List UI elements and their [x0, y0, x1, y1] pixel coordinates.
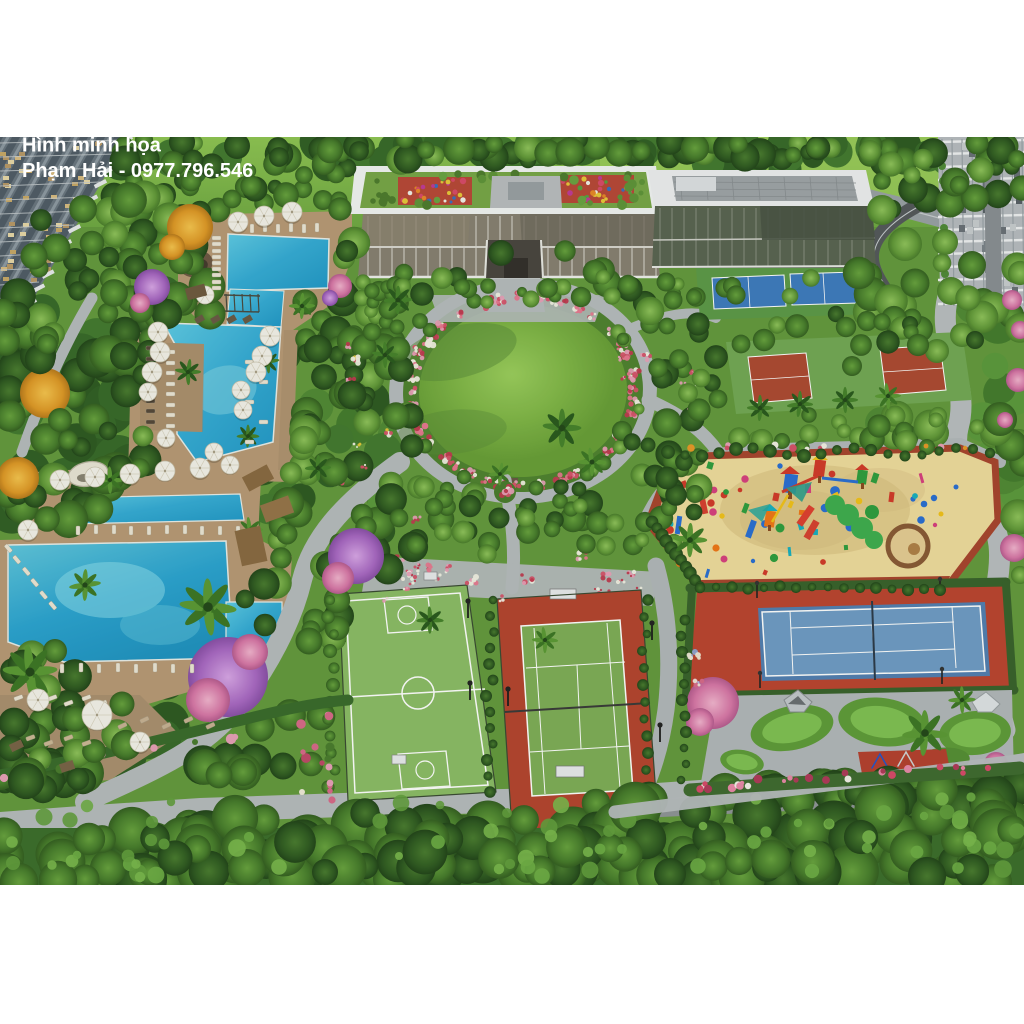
svg-text:Hình minh họa: Hình minh họa: [22, 135, 162, 157]
svg-text:Phạm Hải - 0977.796.546: Phạm Hải - 0977.796.546: [22, 160, 253, 182]
